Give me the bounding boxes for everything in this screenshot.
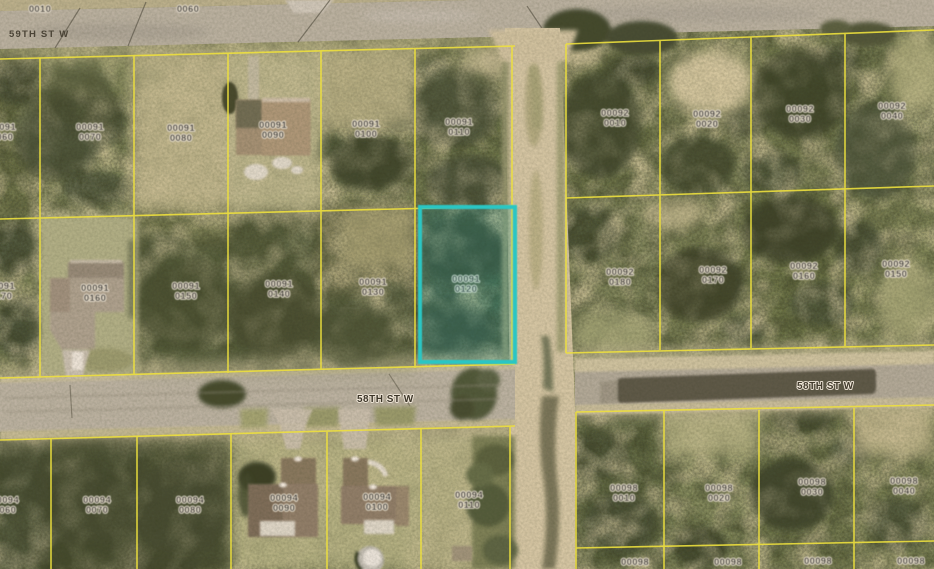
svg-text:00098: 00098 [804, 556, 832, 567]
svg-text:0100: 0100 [355, 129, 377, 140]
svg-text:0160: 0160 [793, 271, 815, 282]
svg-text:58TH ST W: 58TH ST W [797, 381, 854, 392]
svg-text:0080: 0080 [170, 133, 192, 144]
svg-text:0010: 0010 [29, 4, 51, 15]
svg-text:58TH ST W: 58TH ST W [357, 394, 414, 405]
svg-text:0150: 0150 [175, 291, 197, 302]
svg-text:0070: 0070 [86, 505, 108, 516]
svg-text:0100: 0100 [366, 502, 388, 513]
svg-text:0140: 0140 [268, 289, 290, 300]
svg-text:0170: 0170 [702, 275, 724, 286]
svg-text:0060: 0060 [0, 505, 16, 516]
svg-text:0010: 0010 [604, 118, 626, 129]
svg-text:0080: 0080 [179, 505, 201, 516]
svg-text:0020: 0020 [708, 493, 730, 504]
svg-text:0090: 0090 [262, 130, 284, 141]
svg-text:0110: 0110 [458, 500, 480, 511]
svg-text:0030: 0030 [801, 487, 823, 498]
svg-text:0010: 0010 [613, 493, 635, 504]
svg-text:59TH ST W: 59TH ST W [9, 29, 69, 40]
svg-text:0030: 0030 [789, 114, 811, 125]
svg-text:00098: 00098 [714, 557, 742, 568]
svg-text:0060: 0060 [177, 4, 199, 15]
svg-text:0070: 0070 [79, 132, 101, 143]
svg-text:0040: 0040 [893, 486, 915, 497]
svg-text:0090: 0090 [273, 503, 295, 514]
svg-text:00098: 00098 [621, 557, 649, 568]
svg-text:0130: 0130 [362, 287, 384, 298]
svg-text:0060: 0060 [0, 132, 13, 143]
svg-text:00098: 00098 [897, 556, 925, 567]
svg-text:0020: 0020 [696, 119, 718, 130]
svg-text:0160: 0160 [84, 293, 106, 304]
svg-text:0150: 0150 [885, 269, 907, 280]
svg-text:0180: 0180 [609, 277, 631, 288]
svg-text:0110: 0110 [448, 127, 470, 138]
svg-text:0040: 0040 [881, 111, 903, 122]
svg-text:0170: 0170 [0, 291, 12, 302]
